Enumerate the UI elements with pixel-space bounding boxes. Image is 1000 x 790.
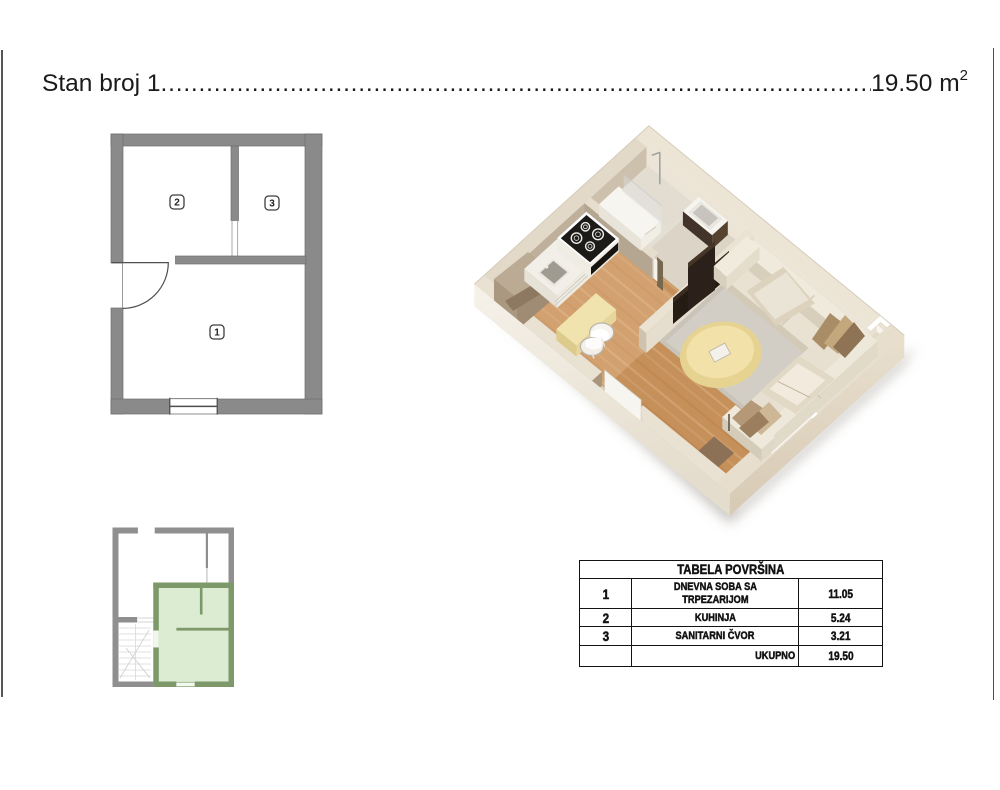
svg-text:2: 2 bbox=[174, 198, 180, 209]
svg-text:1: 1 bbox=[214, 328, 220, 339]
svg-text:3: 3 bbox=[269, 199, 275, 210]
